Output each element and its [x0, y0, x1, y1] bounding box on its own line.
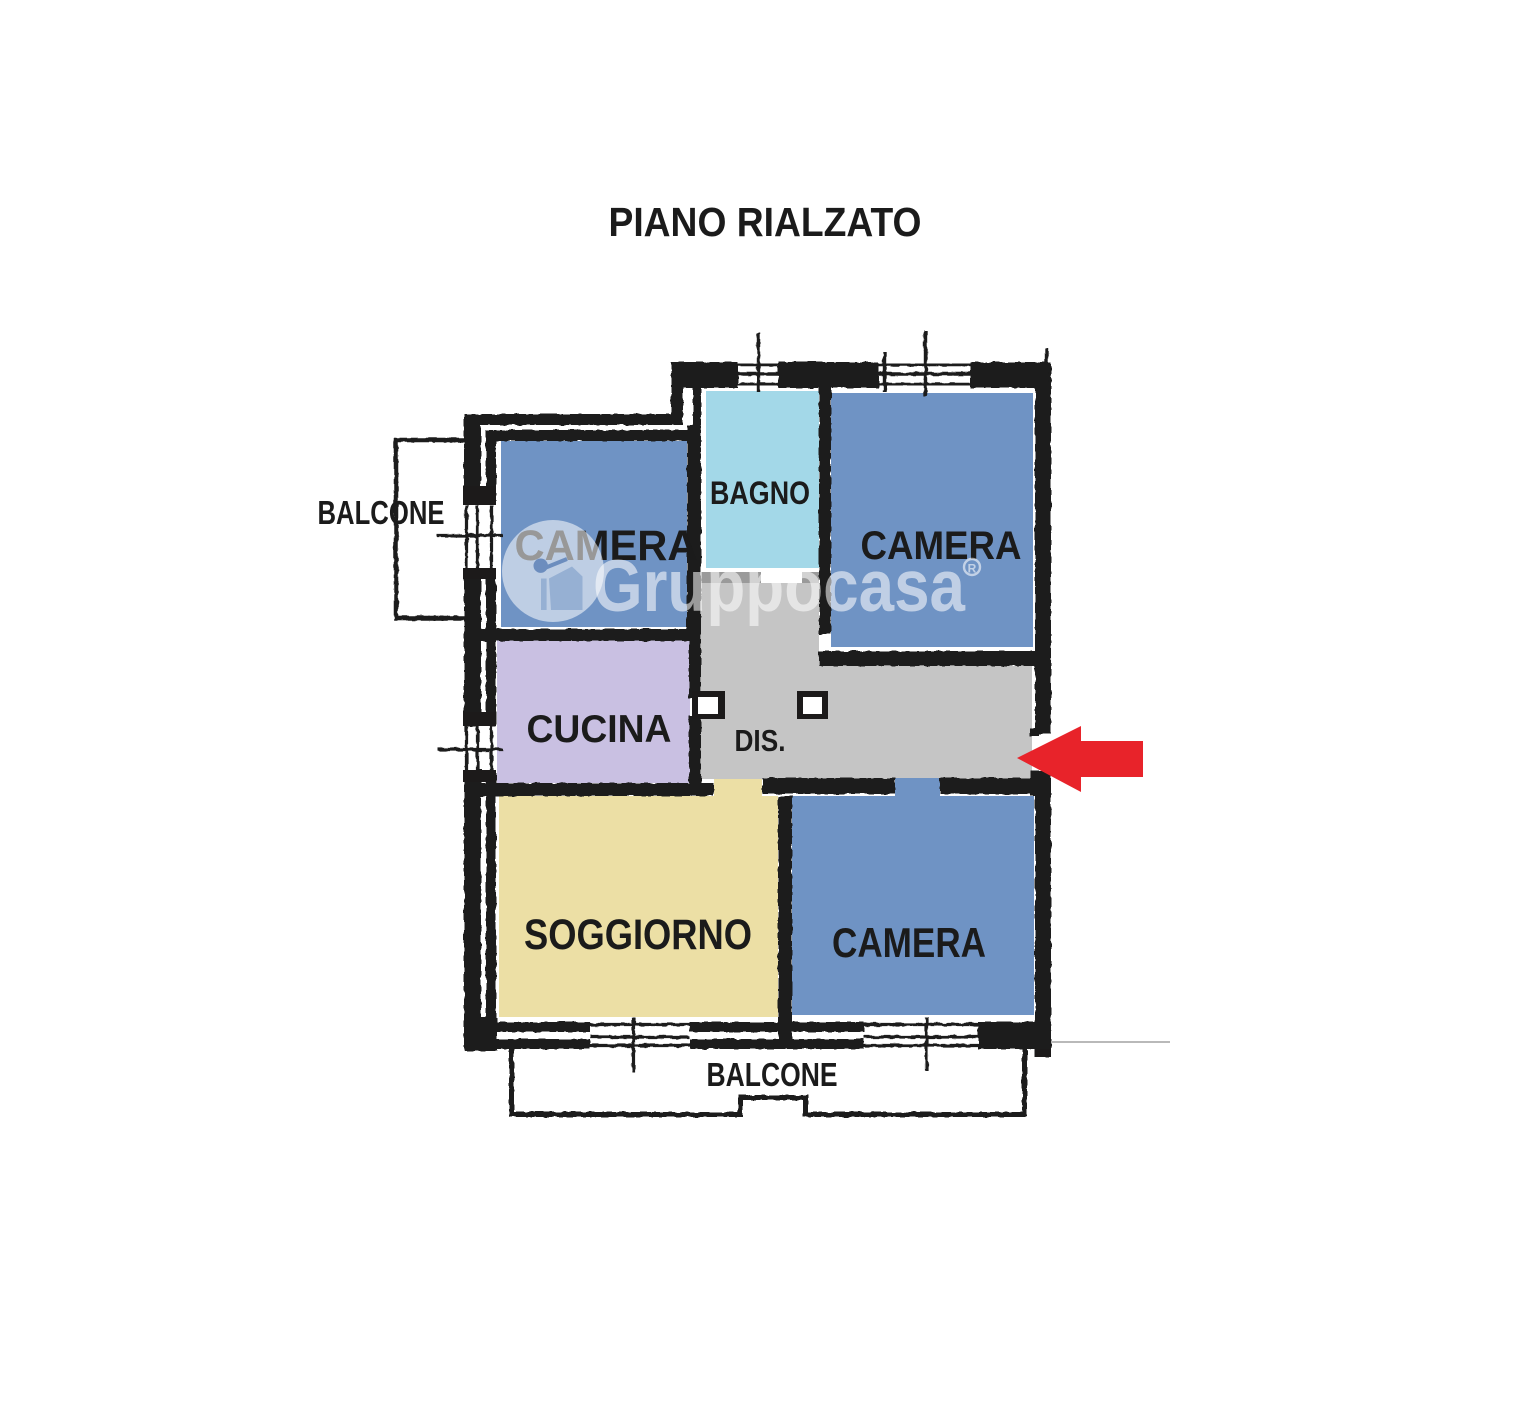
svg-text:BALCONE: BALCONE [707, 1056, 838, 1093]
svg-text:PIANO RIALZATO: PIANO RIALZATO [609, 199, 922, 245]
svg-text:R: R [968, 562, 977, 576]
svg-text:CAMERA: CAMERA [832, 919, 986, 966]
svg-text:Gruppocasa: Gruppocasa [593, 546, 966, 627]
svg-text:SOGGIORNO: SOGGIORNO [524, 911, 752, 959]
svg-text:BAGNO: BAGNO [710, 475, 810, 511]
svg-text:BALCONE: BALCONE [318, 494, 445, 531]
svg-text:DIS.: DIS. [735, 723, 786, 758]
svg-text:CUCINA: CUCINA [527, 708, 672, 751]
